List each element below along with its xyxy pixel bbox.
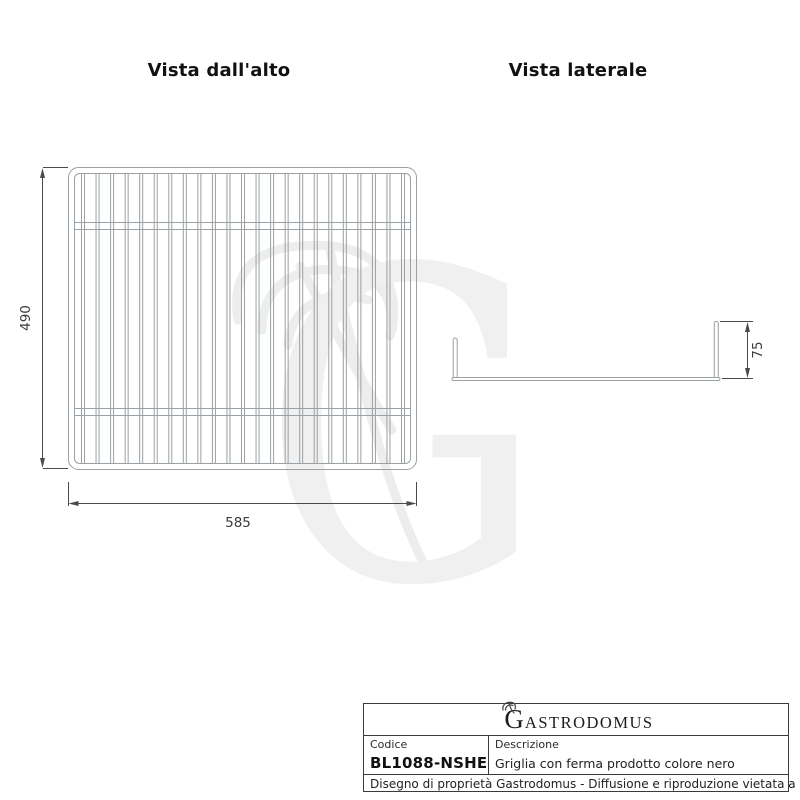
dim-label-585: 585: [225, 515, 251, 531]
description-value: Griglia con ferma prodotto colore nero: [495, 756, 788, 771]
side-right-stub: [714, 322, 718, 378]
logo-leaf-icon: [501, 700, 517, 718]
technical-drawing: G 490: [0, 0, 800, 800]
code-label: Codice: [370, 738, 488, 752]
legal-notice: Disegno di proprietà Gastrodomus - Diffu…: [364, 774, 788, 792]
gastrodomus-logo: G ASTRODOMUS: [498, 706, 653, 733]
dim-label-75: 75: [750, 341, 766, 358]
dim-label-490: 490: [18, 305, 34, 331]
logo-row: G ASTRODOMUS: [364, 704, 788, 736]
arrow-up-icon: [745, 322, 750, 332]
title-block: G ASTRODOMUS Codice BL1088-NSHE Descrizi…: [363, 703, 789, 792]
dimension-490: 490: [18, 168, 68, 469]
arrow-down-icon: [745, 368, 750, 378]
title-block-main-row: Codice BL1088-NSHE Descrizione Griglia c…: [364, 736, 788, 774]
code-value: BL1088-NSHE: [370, 754, 488, 772]
arrow-down-icon: [40, 458, 45, 468]
description-label: Descrizione: [495, 738, 788, 752]
logo-text: ASTRODOMUS: [525, 715, 654, 732]
arrow-up-icon: [40, 168, 45, 178]
watermark-g: G: [262, 179, 544, 680]
description-cell: Descrizione Griglia con ferma prodotto c…: [489, 736, 788, 774]
arrow-left-icon: [69, 501, 79, 506]
dimension-75: 75: [720, 322, 766, 379]
code-cell: Codice BL1088-NSHE: [364, 736, 489, 774]
